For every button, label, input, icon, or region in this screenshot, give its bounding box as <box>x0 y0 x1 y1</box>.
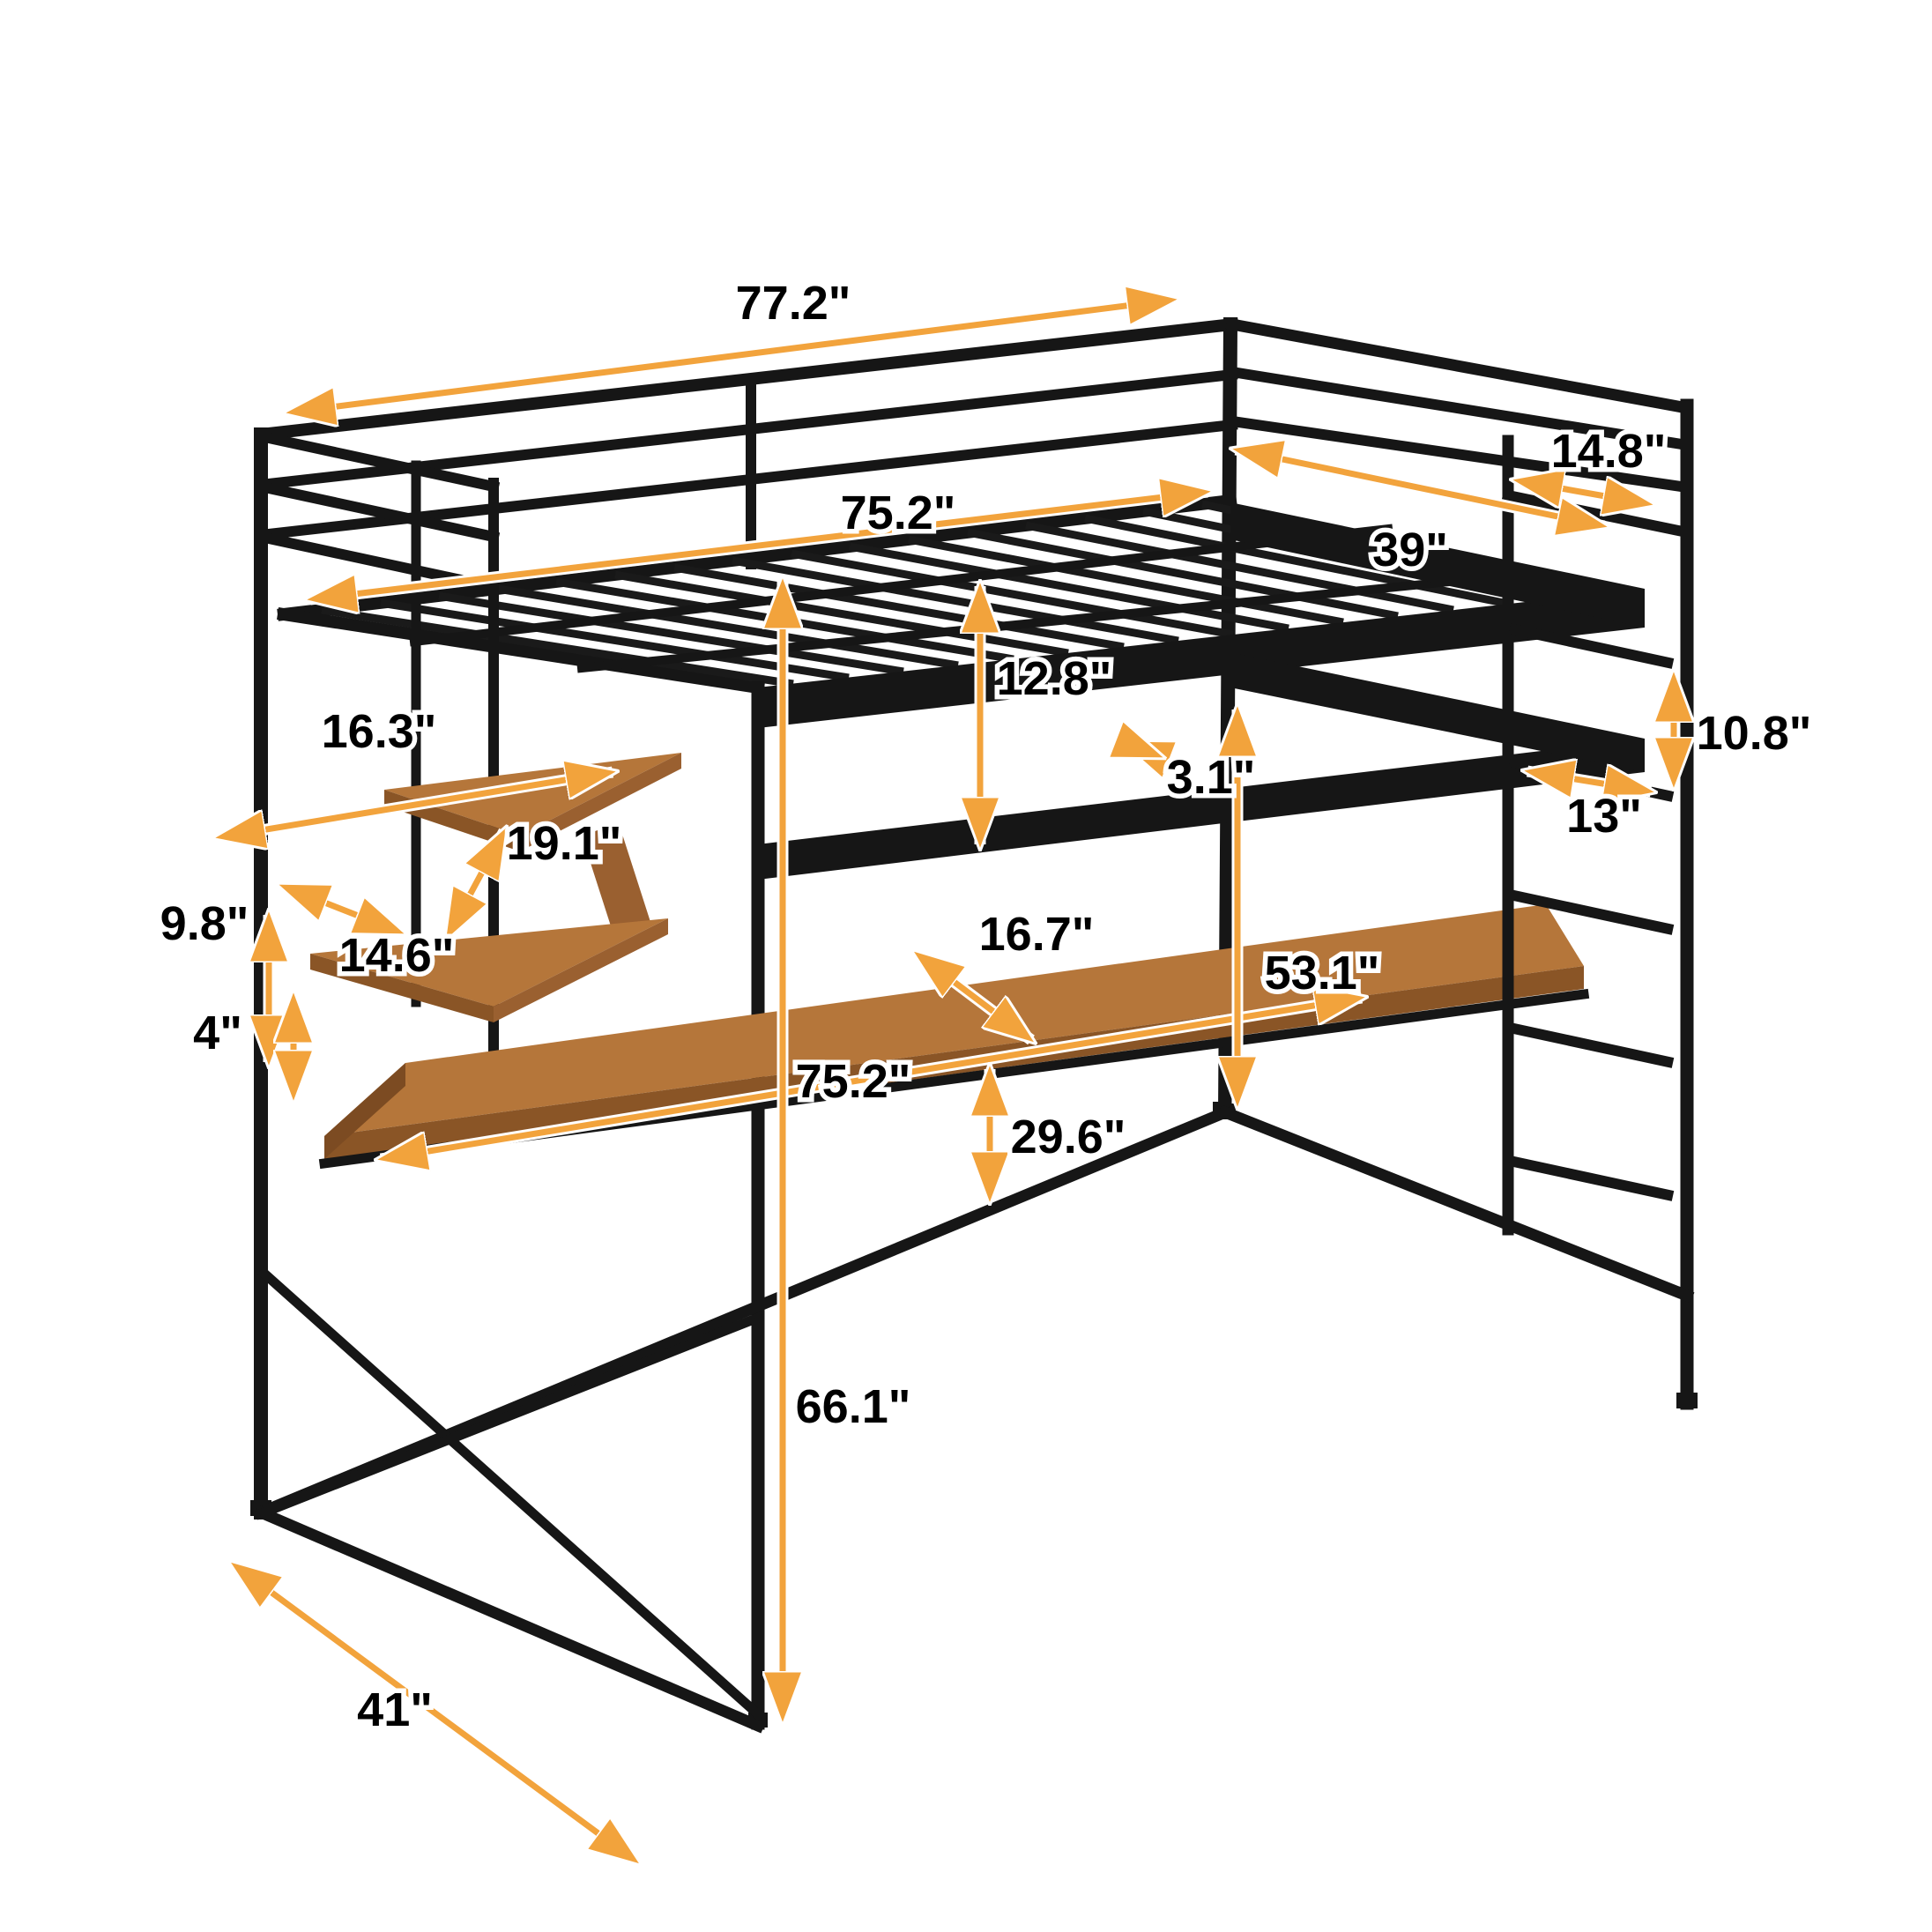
dim-arrow-overall-depth <box>234 1564 636 1861</box>
dim-label-shelf-diagonal: 19.1" <box>507 817 622 870</box>
dim-label-shelf-length: 16.3" <box>322 705 437 758</box>
dim-label-shelf-depth: 14.6" <box>339 929 455 982</box>
outer-right-foot <box>1676 1393 1698 1408</box>
dim-label-desk-depth: 16.7" <box>979 908 1095 961</box>
dim-label-desk-length: 75.2" <box>796 1055 911 1108</box>
dim-label-overall-length: 77.2" <box>736 277 851 330</box>
loft-bed-diagram-svg: 77.2" 75.2" 14.8" 39" 12.8" 3.1" 16.3" 1… <box>0 0 1932 1932</box>
dim-label-ladder-rung-width: 13" <box>1566 790 1642 843</box>
ladder-rung-5 <box>1510 1161 1673 1196</box>
dim-label-shelf-to-desk-gap: 4" <box>193 1007 242 1059</box>
dim-label-under-bed-clearance: 53.1" <box>1265 947 1380 999</box>
head-guardrail-top-rail <box>1232 324 1687 408</box>
ladder-rung-1 <box>1510 628 1673 664</box>
dim-label-head-rail-section: 14.8" <box>1551 425 1667 478</box>
dim-label-guardrail-height: 12.8" <box>997 652 1112 705</box>
dim-label-shelf-gap: 9.8" <box>160 897 249 950</box>
dimension-diagram: 77.2" 75.2" 14.8" 39" 12.8" 3.1" 16.3" 1… <box>0 0 1932 1932</box>
dim-label-total-height: 66.1" <box>796 1380 911 1433</box>
dim-label-bed-width: 39" <box>1372 524 1448 576</box>
dim-label-bed-inner-length: 75.2" <box>841 487 956 539</box>
dim-arrow-shelf-depth <box>282 886 401 933</box>
dim-label-frame-bar-thickness: 3.1" <box>1167 751 1256 804</box>
ladder-rung-4 <box>1510 1028 1673 1063</box>
dim-label-desk-height: 29.6" <box>1011 1111 1126 1163</box>
x-brace-2 <box>264 1318 758 1512</box>
end-rail-lower-bar <box>1230 652 1645 772</box>
dim-arrow-frame-bar-thickness <box>1126 743 1160 756</box>
dim-label-overall-depth: 41" <box>357 1683 433 1736</box>
end-floor-rail <box>1225 1112 1687 1296</box>
dim-label-ladder-rung-spacing: 10.8" <box>1697 707 1812 760</box>
left-floor-rail <box>261 1512 758 1726</box>
